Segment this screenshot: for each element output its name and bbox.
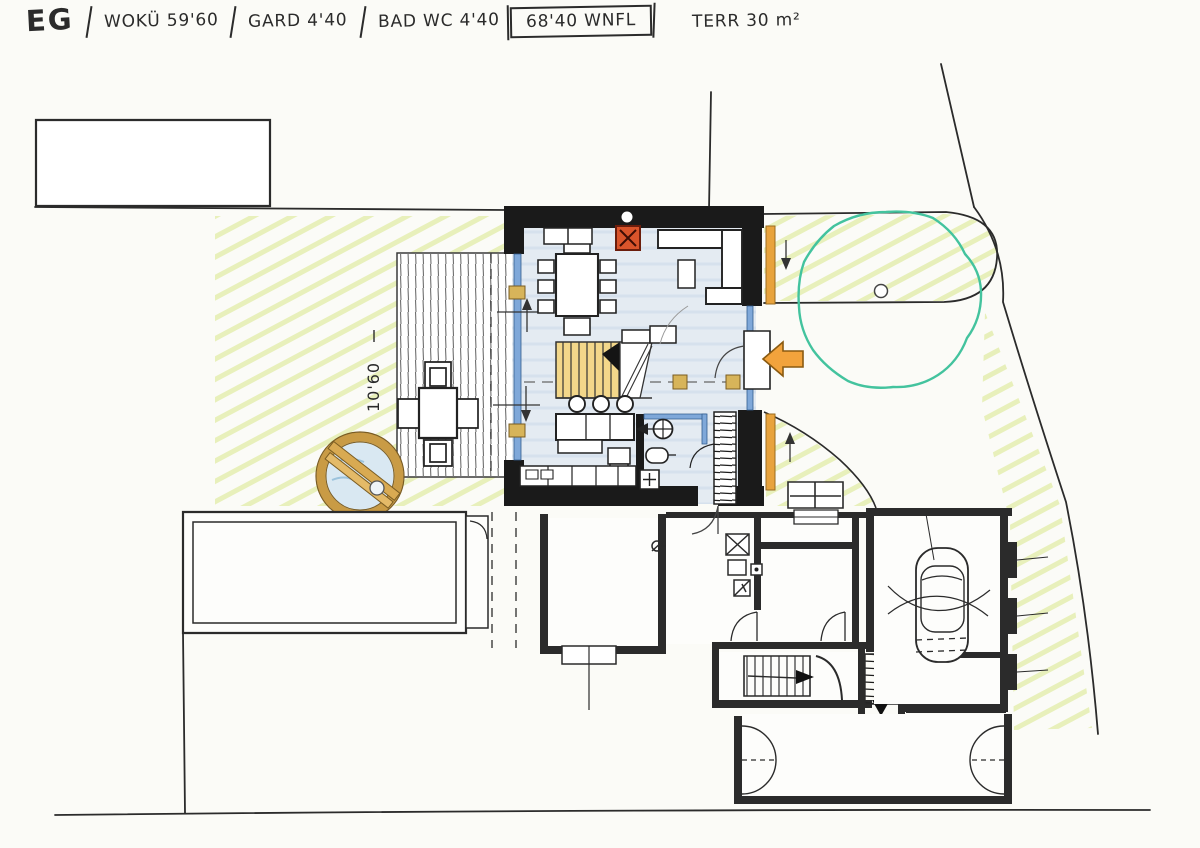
vestibule-shelving [714,412,736,504]
terrace-width-label: 10'60 [364,362,383,412]
hot-tub [316,432,404,520]
sideboard [544,228,592,244]
tree-trunk [875,285,888,298]
courtyard-line [55,810,1150,815]
dining-chair [538,280,554,293]
neighbor-building [36,120,270,206]
car [916,548,968,662]
tub-detail [370,481,384,495]
south-hall [734,706,1012,804]
new-house [493,206,803,534]
dashed-path [492,512,516,648]
room-below-house [540,514,666,710]
stair-a [719,652,864,700]
kitchen-sink [541,470,553,479]
oven-tower [608,448,630,464]
outbuilding-long [183,512,488,633]
wall-north [504,206,764,228]
mullion-post [509,286,525,299]
bar-stool [569,396,585,412]
bath-glazing-top [644,414,706,419]
wall-west-top [504,206,524,254]
wall-east-top [742,206,762,306]
bar-stool [593,396,609,412]
dining-chair [600,280,616,293]
mullion-post [509,424,525,437]
kitchen-island [556,414,634,440]
garden-bench [788,482,843,524]
dining-chair [600,260,616,273]
deck-boards [397,253,513,477]
chimney [622,212,633,223]
timber-post [673,375,687,389]
dining-chair [564,318,590,335]
sliding-shutter [766,226,775,304]
floor-plan-canvas: 10'60 [0,0,1200,848]
boundary-vertical [709,92,711,210]
connector [466,516,488,628]
wall-south-left [504,486,698,506]
terrace-table [419,388,457,438]
bar-stool [617,396,633,412]
main-stair [556,342,652,398]
dining-chair [538,260,554,273]
terrace-chair-inner [430,368,446,386]
sliding-shutter [766,414,775,490]
bath-glazing-side [702,414,707,444]
dining-chair [600,300,616,313]
terrace-chair-inner [430,444,446,462]
wood-stove [616,226,640,250]
pilaster [1008,542,1017,578]
toilet [646,448,668,463]
street-line-left [35,207,506,210]
wall-east-bottom [738,410,762,506]
pilaster [1008,654,1017,690]
boundary-left-lower [183,633,185,813]
dining-chair [538,300,554,313]
boundary-diagonal-top [941,64,974,207]
pilaster [1008,598,1017,634]
coffee-table [678,260,695,288]
timber-post [726,375,740,389]
dining-table [556,254,598,316]
kitchen-sink [526,470,538,479]
sketch-sheet: EG WOKÜ 59'60 GARD 4'40 BAD WC 4'40 68'4… [0,0,1200,848]
